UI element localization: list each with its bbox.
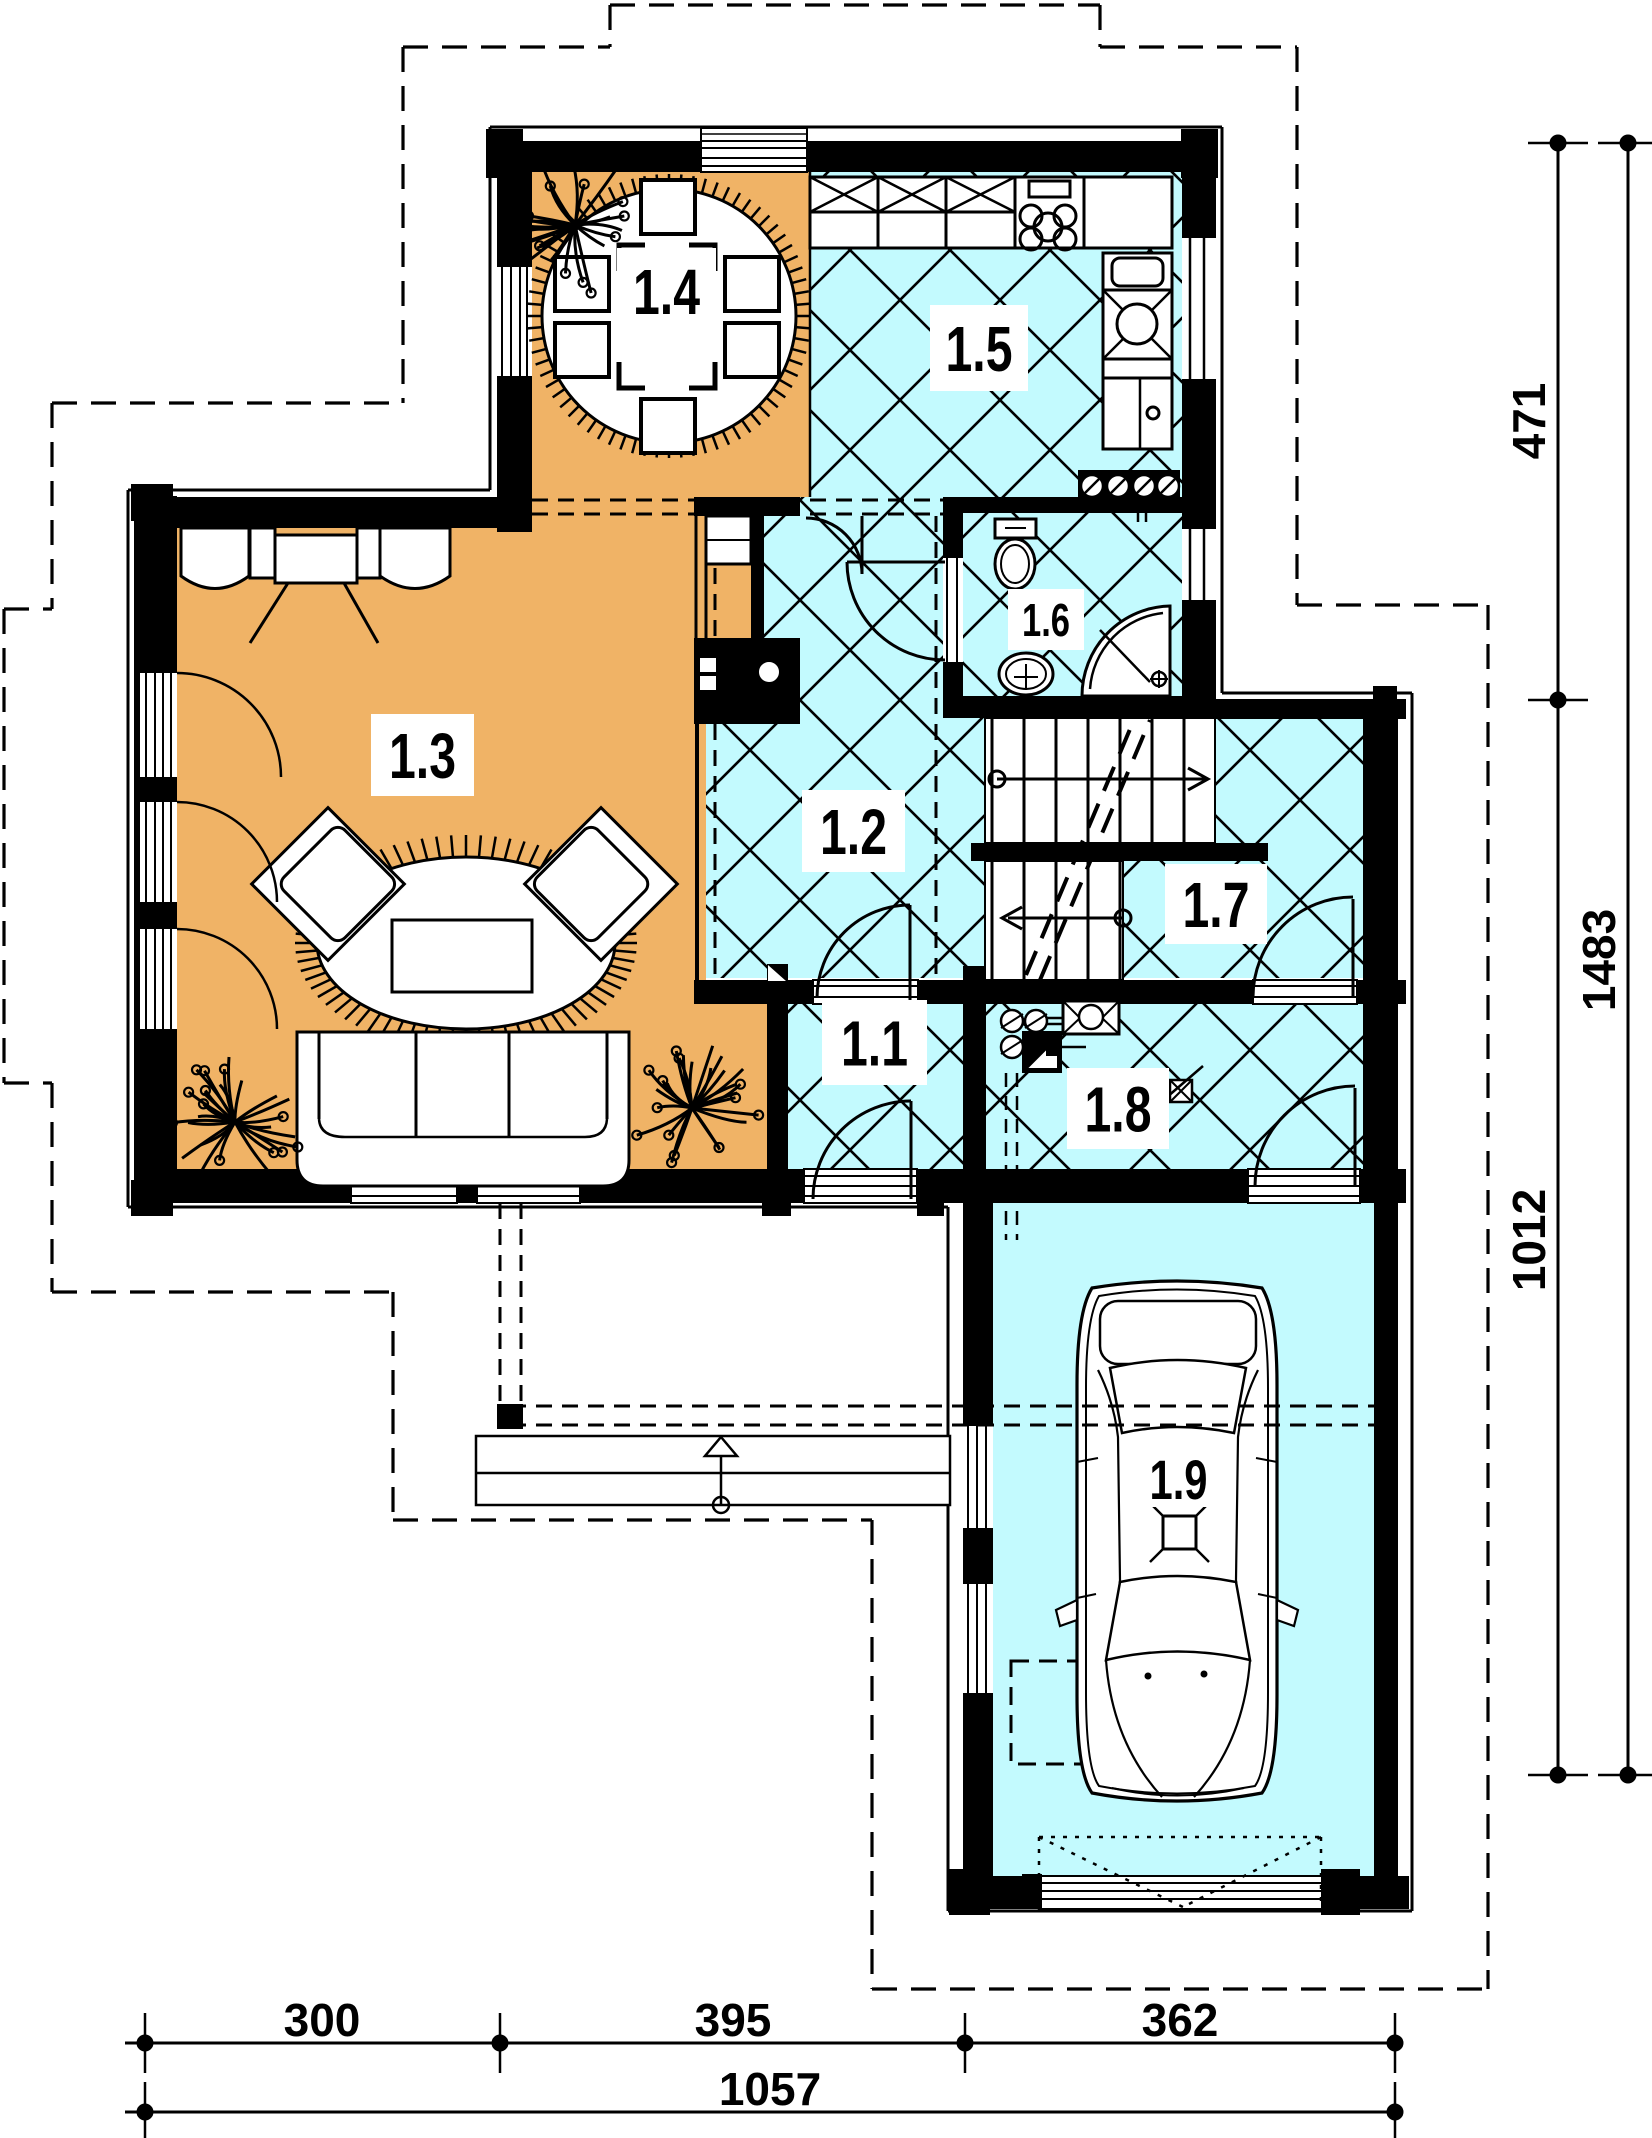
svg-text:362: 362 — [1142, 1994, 1219, 2046]
svg-text:395: 395 — [695, 1994, 772, 2046]
svg-text:471: 471 — [1503, 383, 1555, 460]
svg-text:1057: 1057 — [719, 2063, 821, 2115]
svg-text:1.1: 1.1 — [841, 1008, 908, 1080]
svg-text:1012: 1012 — [1503, 1189, 1555, 1291]
svg-text:1.8: 1.8 — [1085, 1074, 1152, 1146]
svg-text:1.4: 1.4 — [633, 256, 700, 328]
svg-text:1.6: 1.6 — [1022, 594, 1070, 646]
svg-text:1.3: 1.3 — [389, 720, 456, 792]
svg-text:1.2: 1.2 — [820, 796, 887, 868]
svg-text:1.9: 1.9 — [1150, 1448, 1208, 1511]
svg-text:300: 300 — [284, 1994, 361, 2046]
svg-text:1483: 1483 — [1573, 909, 1625, 1011]
svg-text:1.7: 1.7 — [1183, 869, 1250, 941]
svg-text:1.5: 1.5 — [946, 313, 1013, 385]
